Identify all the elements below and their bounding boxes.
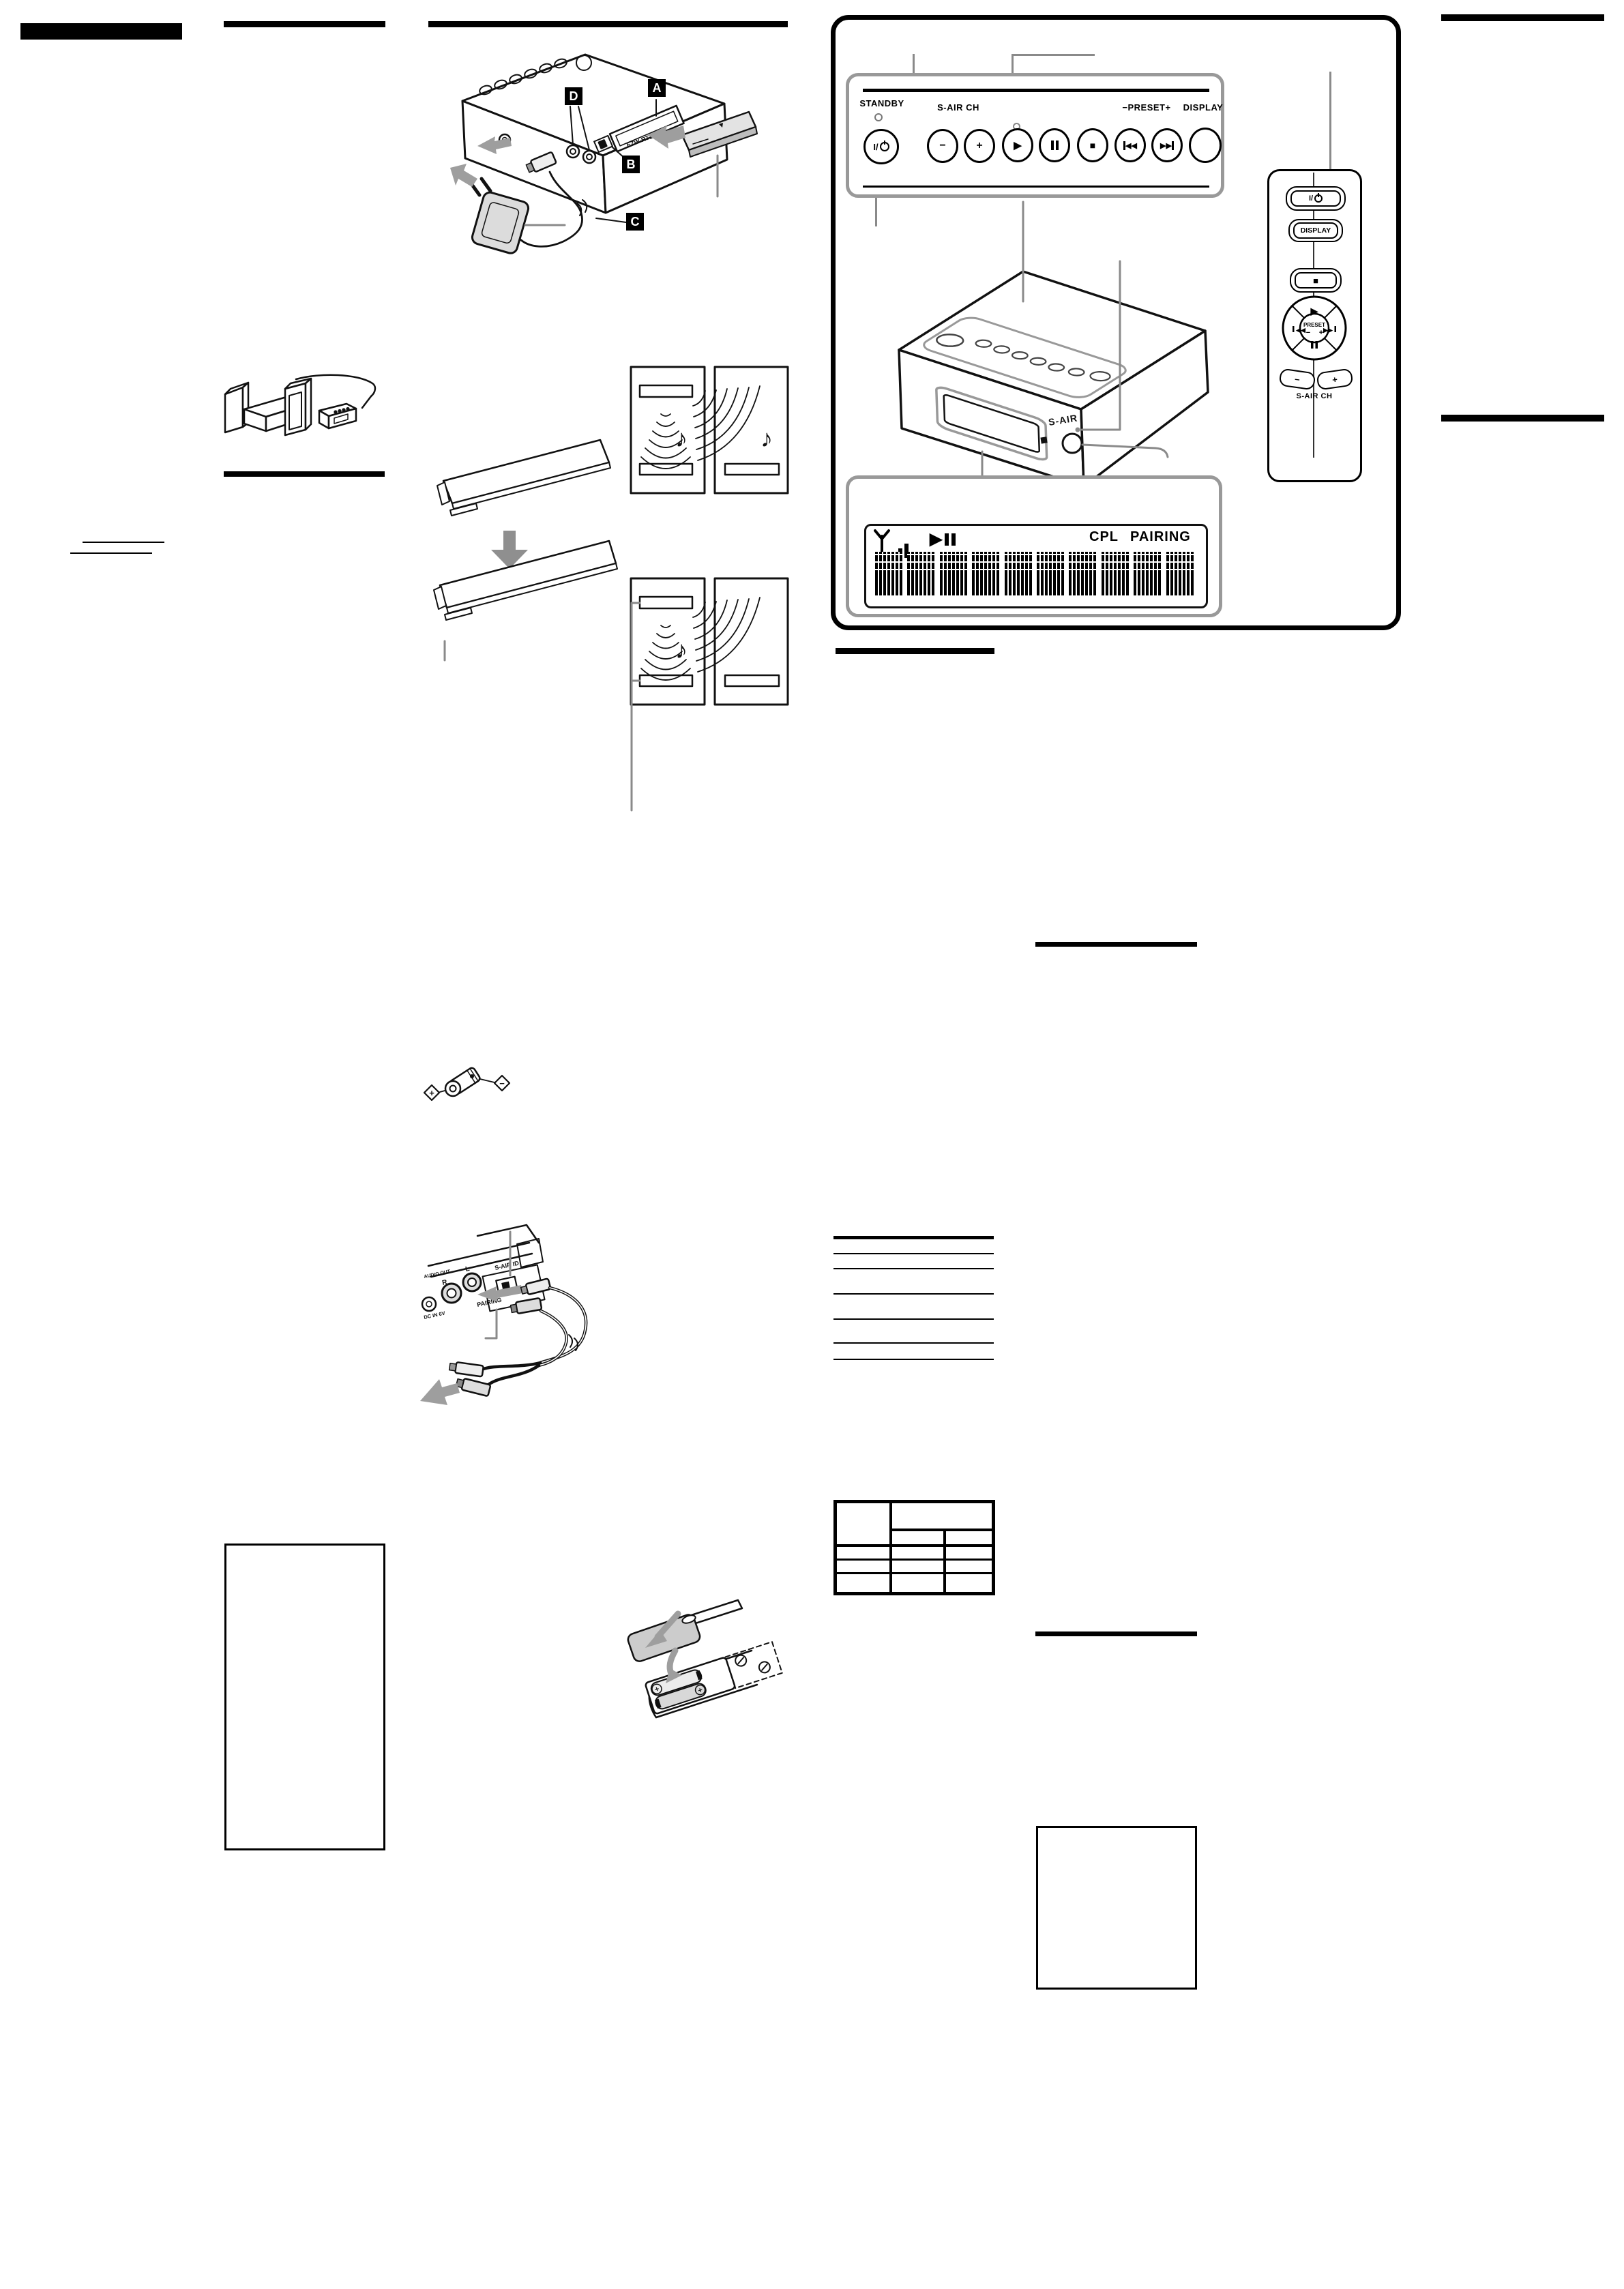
remote-stop-button-face: ■ [1295, 272, 1337, 289]
sair-minus-button: − [927, 129, 958, 163]
room-diagram [631, 367, 788, 493]
col3-heading-rule [428, 21, 788, 27]
system-overview-icon [225, 375, 375, 435]
dc-in-label: DC IN 6V [424, 1310, 446, 1320]
play-callout-h [1012, 54, 1095, 56]
display-button [1189, 128, 1222, 163]
remote-pad: ▶ ◀◀ ▶▶ PRESET − + [1276, 291, 1353, 368]
callout-b: B [622, 156, 640, 173]
remote-preset-plus: + [1319, 329, 1323, 337]
callout-c: C [626, 213, 644, 231]
polarity-minus: − [499, 1078, 505, 1089]
power-icon [880, 142, 889, 151]
col1-underline-2 [70, 552, 152, 554]
cpl-indicator: CPL [1089, 529, 1119, 545]
music-note: ♪ [675, 424, 688, 452]
slot-cover-diagram [434, 440, 617, 660]
pairing-indicator: PAIRING [1130, 529, 1191, 545]
display-label: DISPLAY [1169, 102, 1237, 113]
prev-button: ◀◀ [1114, 128, 1146, 162]
remote-power-button-face: I/ [1290, 190, 1341, 207]
plug-in-arrow [477, 1285, 522, 1302]
next-bar-icon [1172, 141, 1174, 150]
remote-control-diagram: I/ DISPLAY ■ ▶ ◀◀ ▶▶ PRESET − + − + S-AI… [1267, 169, 1362, 482]
sair-id-label: S-AIR ID [494, 1260, 520, 1271]
battery-plus: + [697, 1686, 704, 1695]
slot-model-label: EZW-RT10A [625, 130, 661, 149]
callout-d: D [565, 87, 582, 105]
remote-play-icon: ▶ [1310, 306, 1319, 316]
music-note: ♪ [675, 636, 688, 664]
battery-plus: + [653, 1685, 660, 1694]
sair-plus-button: + [964, 129, 995, 163]
play-pause-indicator: ▶ [930, 529, 956, 549]
display-diagram: ▶ CPL PAIRING [846, 475, 1222, 617]
room-callout-line [632, 603, 640, 810]
power-button: I/ [863, 129, 899, 164]
front-panel-diagram: STANDBY I/ S-AIR CH − + ▶ ■ −PRESET+ ◀◀ … [846, 73, 1224, 198]
insert-arrow [648, 125, 685, 149]
note-box-left [224, 1544, 385, 1850]
remote-sair-ch-label: S-AIR CH [1273, 392, 1355, 400]
col2-heading-rule-2 [224, 471, 385, 477]
col2-heading-rule [224, 21, 385, 27]
ruled-list-block [833, 1228, 994, 1364]
dc-plug-arrow [477, 136, 512, 154]
remote-sair-minus-button: − [1278, 368, 1316, 391]
manual-page: EZW-RT10A [0, 0, 1624, 2289]
pause-icon [1051, 141, 1059, 150]
page-header-bar [20, 23, 182, 40]
below-panel-heading-rule [836, 648, 994, 654]
remote-sair-plus-button: + [1316, 368, 1353, 391]
audio-cable-diagram: S-AIR ID PAIRING AUDIO OUT R L DC IN 6V [420, 1225, 586, 1405]
jack-r-label: R [441, 1279, 448, 1287]
rear-view-diagram: EZW-RT10A [450, 55, 757, 255]
standby-led [874, 113, 883, 121]
unplug-cable-arrow [420, 1379, 460, 1405]
dot-matrix-row [875, 552, 1194, 595]
next-button: ▶▶ [1151, 128, 1183, 162]
remote-display-button-face: DISPLAY [1293, 222, 1338, 239]
remote-power-icon [1314, 194, 1323, 203]
pause-indicator-icon [945, 533, 956, 546]
stop-button: ■ [1077, 128, 1108, 162]
music-note: ♪ [761, 424, 773, 452]
polarity-icon: + − [424, 1067, 510, 1100]
pause-button [1039, 128, 1070, 162]
pairing-label: PAIRING [476, 1297, 502, 1308]
jack-l-label: L [464, 1265, 470, 1273]
remote-preset-minus: − [1306, 329, 1310, 337]
spec-table [833, 1500, 995, 1595]
standby-label: STANDBY [855, 98, 909, 108]
col1-underline-1 [83, 542, 164, 543]
col5-heading-rule-1 [1441, 14, 1604, 21]
sair-ch-label: S-AIR CH [921, 102, 996, 113]
col5-heading-rule-2 [1441, 415, 1604, 422]
audio-out-label: AUDIO OUT [424, 1269, 452, 1280]
down-arrow [491, 531, 528, 569]
radio-waves [641, 386, 760, 469]
polarity-plus: + [429, 1088, 434, 1098]
battery-diagram: + + [626, 1600, 782, 1717]
remote-preset-label: PRESET [1303, 322, 1325, 328]
play-button: ▶ [1002, 128, 1033, 162]
mid-right-heading-rule-1 [1035, 942, 1197, 947]
note-box-right [1036, 1826, 1197, 1990]
unplug-arrow [450, 164, 477, 187]
mid-right-heading-rule-2 [1035, 1631, 1197, 1636]
callout-a: A [648, 79, 666, 97]
